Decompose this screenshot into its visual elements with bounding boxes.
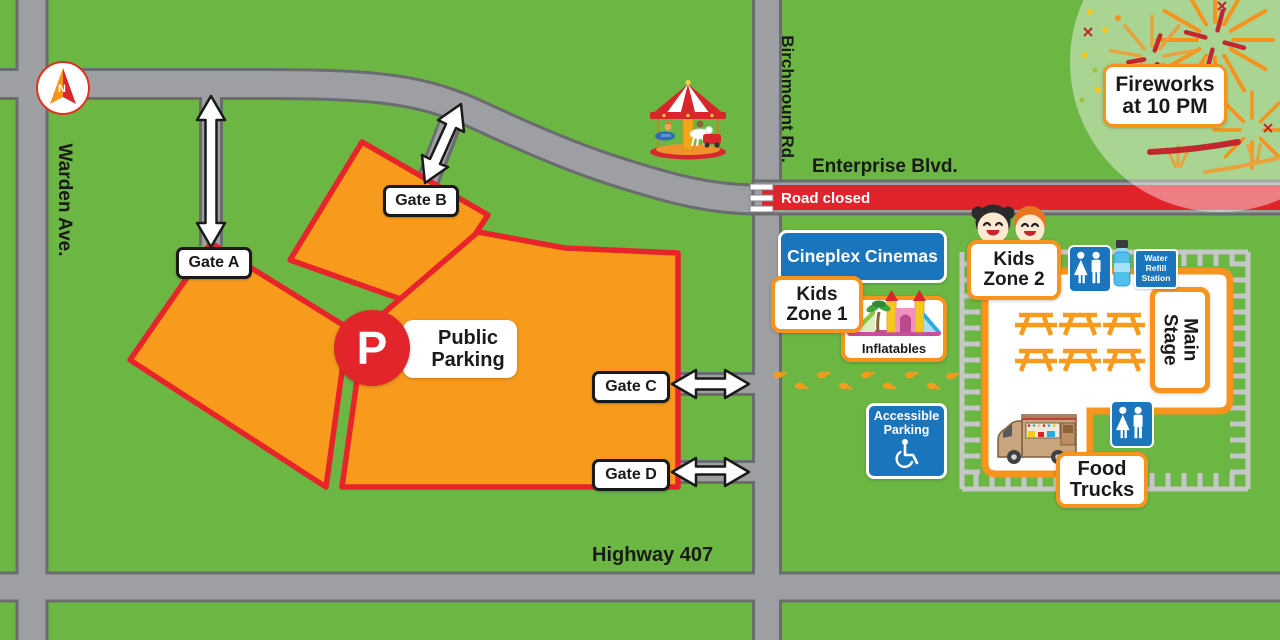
restroom-sign	[1068, 245, 1112, 293]
parking-lot-west	[130, 243, 348, 487]
compass-north-label: N	[58, 83, 66, 95]
fireworks-label: Fireworks at 10 PM	[1103, 64, 1227, 127]
gate-a-label: Gate A	[176, 247, 252, 279]
wheelchair-icon	[892, 438, 922, 470]
road-label-birchmount: Birchmount Rd.	[777, 35, 797, 163]
kids-zone-2-label: Kids Zone 2	[967, 240, 1061, 300]
footprints-icon	[773, 371, 960, 391]
carousel-icon	[650, 80, 726, 160]
restroom-icon	[1112, 402, 1148, 442]
accessible-parking-sign: Accessible Parking	[866, 403, 947, 479]
event-map: Warden Ave. Birchmount Rd. Enterprise Bl…	[0, 0, 1280, 640]
public-parking-label: Public Parking	[403, 320, 517, 378]
water-refill-station-label: Water Refill Station	[1134, 249, 1178, 289]
parking-badge: P	[334, 310, 410, 386]
road-label-enterprise: Enterprise Blvd.	[812, 156, 958, 178]
kids-zone-1-label: Kids Zone 1	[771, 276, 863, 333]
gate-d-label: Gate D	[592, 459, 670, 491]
inflatables-label: Inflatables	[862, 342, 926, 356]
restroom-sign	[1110, 400, 1154, 448]
barricade-icon	[750, 184, 773, 212]
main-stage-label: Main Stage	[1150, 287, 1210, 393]
carousel-car	[703, 134, 721, 148]
road-closed-label: Road closed	[781, 190, 870, 207]
restroom-icon	[1070, 247, 1106, 287]
road-label-warden: Warden Ave.	[53, 144, 75, 257]
water-bottle-icon	[1111, 239, 1133, 289]
gate-c-label: Gate C	[592, 371, 670, 403]
road-label-highway: Highway 407	[592, 544, 713, 567]
food-trucks-label: Food Trucks	[1056, 452, 1148, 508]
gate-b-label: Gate B	[383, 185, 459, 217]
gate-b-arrow-icon	[422, 104, 464, 183]
parking-p-icon: P	[357, 325, 388, 371]
